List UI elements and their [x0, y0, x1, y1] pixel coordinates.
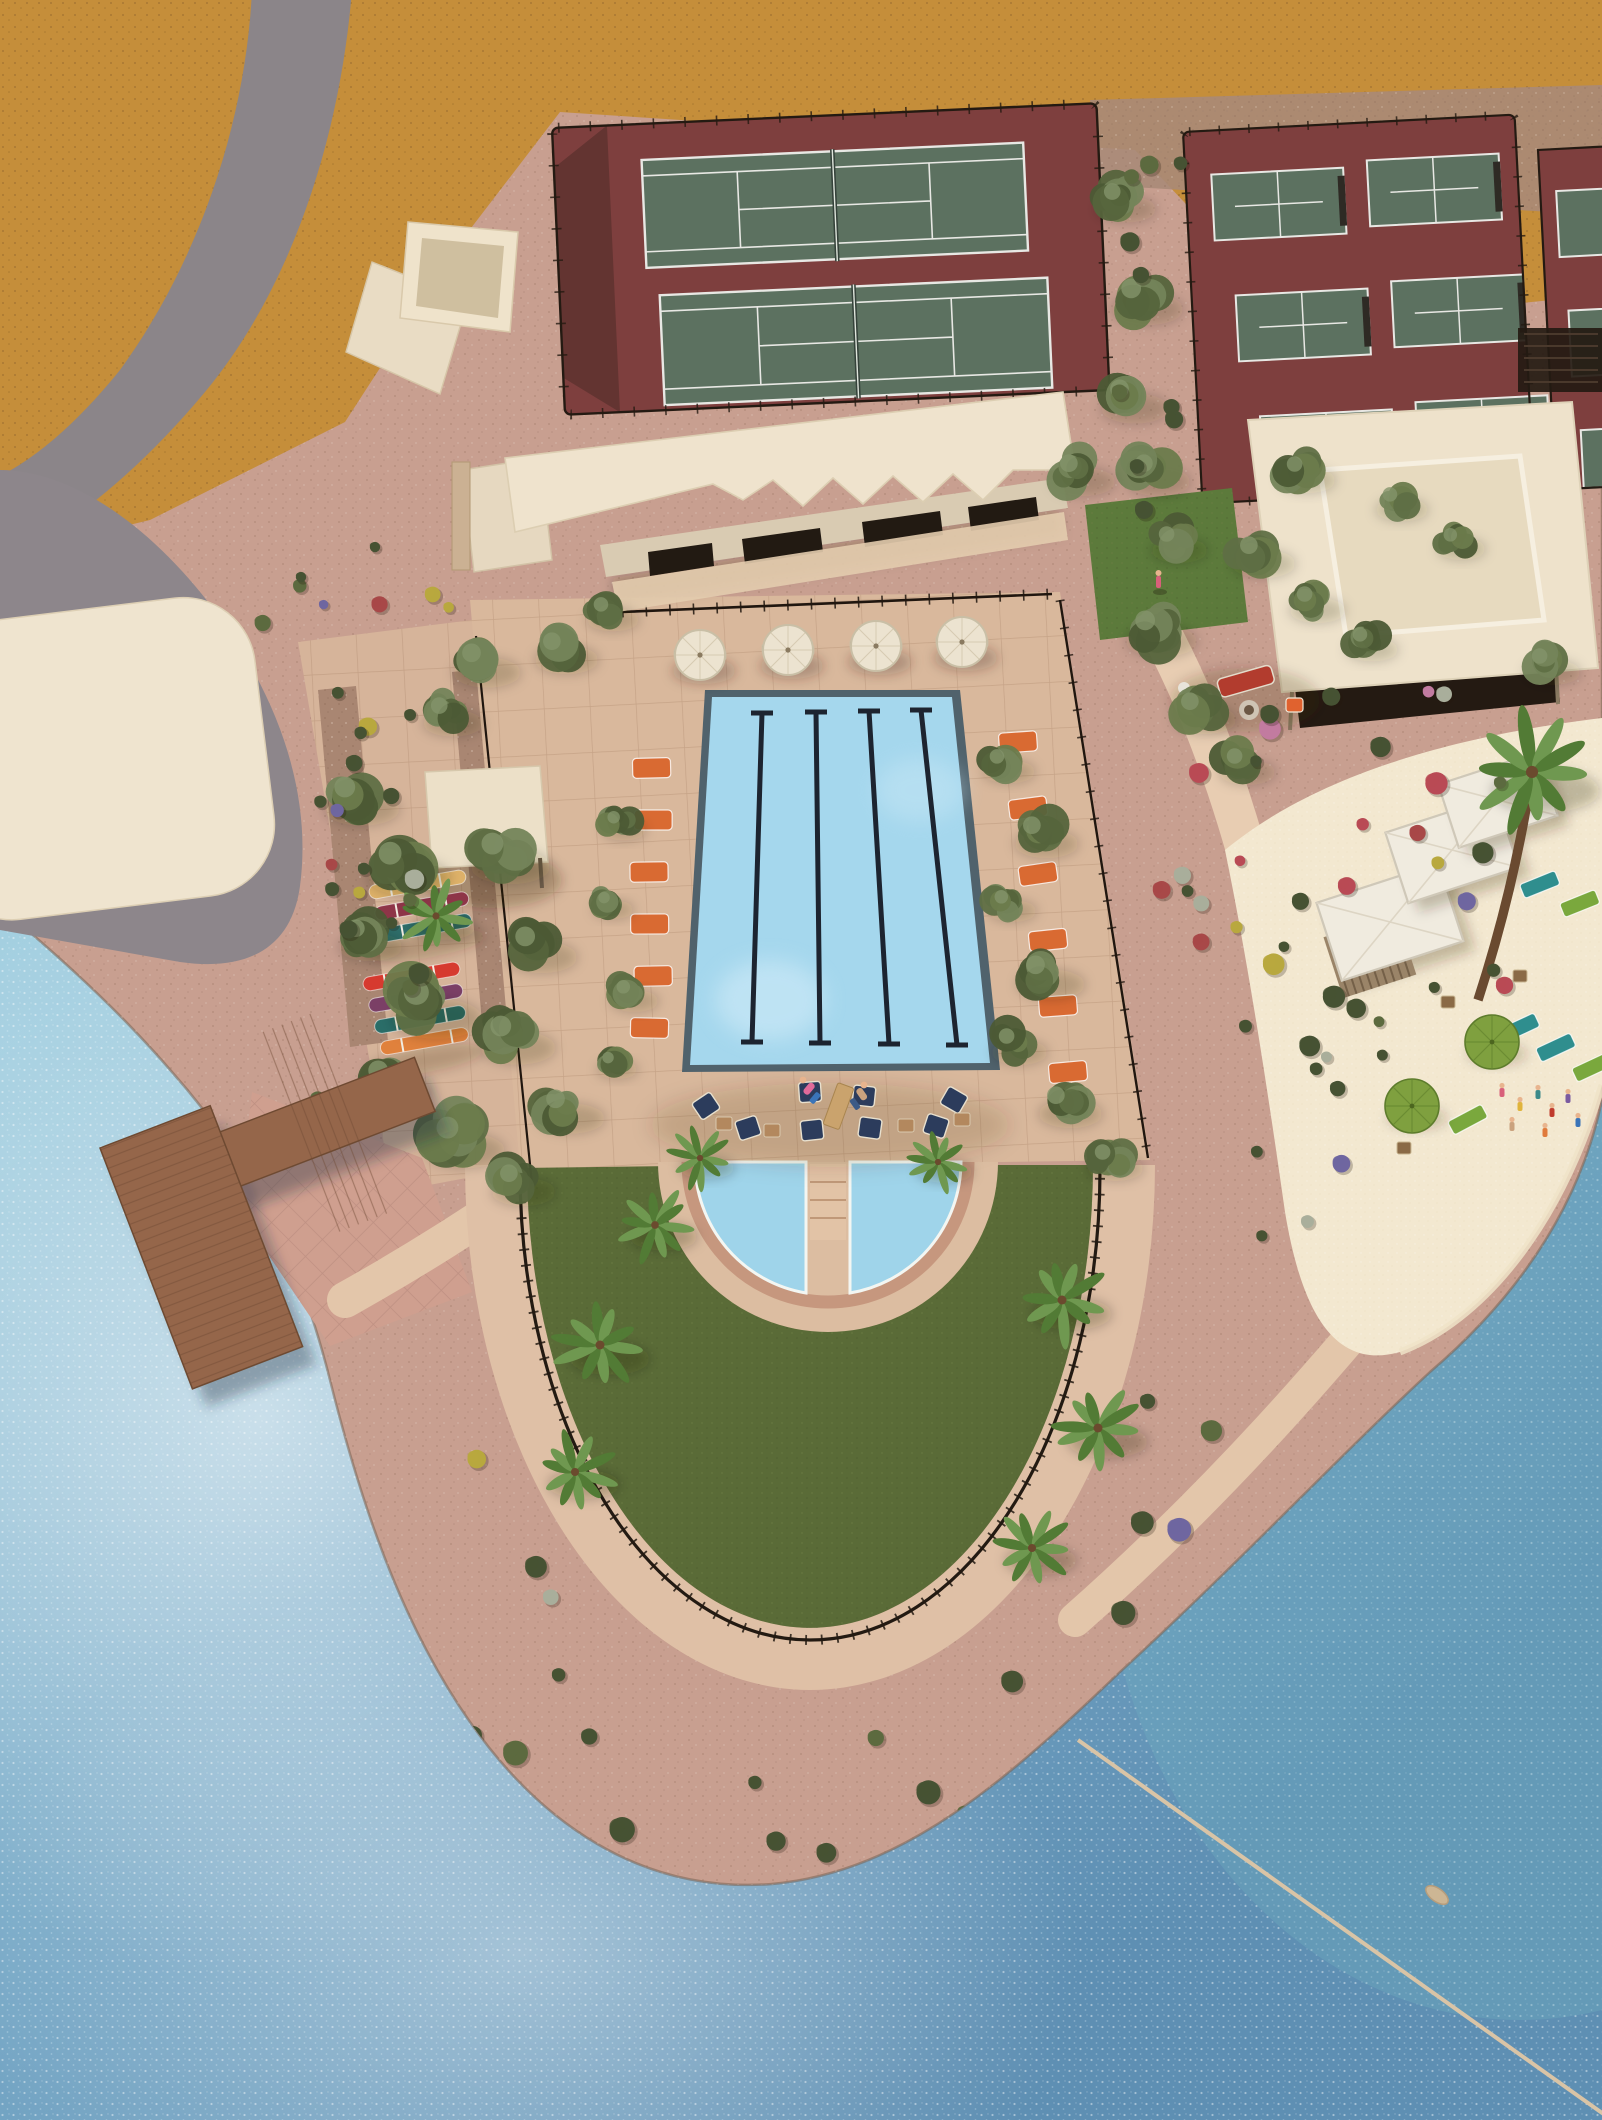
- orange-chair-2: [1286, 698, 1303, 712]
- shrub-tuft: [503, 1742, 518, 1757]
- shrub-tuft: [1323, 987, 1336, 1000]
- shrub-tuft: [1133, 268, 1143, 278]
- shrub-tuft: [1153, 882, 1164, 893]
- umbrella-pole: [1410, 1104, 1415, 1109]
- shrub-tuft: [1301, 1216, 1309, 1224]
- pool-reflection-1: [715, 960, 825, 1040]
- orange-lounger-left: [630, 1018, 668, 1039]
- umbrella-pole: [1490, 1040, 1495, 1045]
- shrub-tuft: [1346, 1000, 1358, 1012]
- shrub-tuft: [386, 918, 393, 925]
- foliage-highlight: [607, 811, 619, 823]
- foliage-highlight: [598, 892, 609, 903]
- shrub-tuft: [1165, 411, 1176, 422]
- palm-crown: [1058, 1296, 1067, 1305]
- shrub-tuft: [1001, 1672, 1014, 1685]
- foliage-highlight: [1383, 487, 1398, 502]
- foliage-highlight: [1159, 526, 1175, 542]
- head: [1509, 1117, 1514, 1122]
- model-photo: [0, 0, 1602, 2120]
- shrub-tuft: [552, 1669, 560, 1677]
- body: [1543, 1128, 1548, 1137]
- shrub-tuft: [766, 1833, 778, 1845]
- shrub-tuft: [358, 864, 365, 871]
- foliage-highlight: [990, 749, 1005, 764]
- foliage-highlight: [1227, 748, 1243, 764]
- shrub-tuft: [1124, 170, 1133, 179]
- shrub-tuft: [255, 616, 265, 626]
- ottoman: [954, 1113, 970, 1126]
- shrub-tuft: [868, 1731, 878, 1741]
- shrub-tuft: [1458, 893, 1469, 904]
- tennis-complex: [552, 103, 1109, 414]
- body: [1536, 1090, 1541, 1099]
- foliage-highlight: [490, 1016, 511, 1037]
- shrub-tuft: [340, 922, 351, 933]
- shrub-tuft: [1357, 819, 1364, 826]
- foliage-highlight: [500, 1164, 518, 1182]
- side-table: [1513, 970, 1527, 982]
- shrub-tuft: [1251, 1147, 1258, 1154]
- side-table: [1397, 1142, 1411, 1154]
- foliage-highlight: [462, 643, 481, 662]
- tree: [595, 806, 647, 841]
- shrub-tuft: [1230, 922, 1237, 929]
- foliage-highlight: [1026, 955, 1045, 974]
- foliage-highlight: [1287, 456, 1303, 472]
- pickleball-court: [1211, 168, 1347, 241]
- umbrella-pole: [697, 652, 702, 657]
- umbrella-pole: [873, 643, 878, 648]
- side-table: [1441, 996, 1455, 1008]
- head: [1565, 1089, 1570, 1094]
- umbrella-pole: [785, 647, 790, 652]
- shrub-tuft: [1260, 706, 1271, 717]
- foliage-highlight: [546, 1089, 565, 1108]
- foliage-highlight: [995, 890, 1009, 904]
- beach-person: [1565, 1089, 1570, 1103]
- body: [1566, 1094, 1571, 1103]
- shrub-tuft: [1140, 1395, 1149, 1404]
- shrub-tuft: [1163, 400, 1173, 410]
- foliage-highlight: [1095, 1144, 1111, 1160]
- shrub-tuft: [319, 600, 325, 606]
- shrub-tuft: [353, 887, 360, 894]
- foliage-highlight: [1532, 648, 1548, 664]
- foliage-highlight: [1047, 1086, 1065, 1104]
- shrub-tuft: [1167, 1519, 1181, 1533]
- beach-person: [1509, 1117, 1514, 1131]
- shrub-tuft: [354, 727, 361, 734]
- pickleball-court: [1236, 289, 1372, 362]
- shrub-tuft: [1374, 1017, 1380, 1023]
- palm-crown: [697, 1155, 703, 1161]
- shrub-tuft: [314, 796, 321, 803]
- shrub-tuft: [405, 871, 417, 883]
- shrub-tuft: [1130, 460, 1139, 469]
- foliage-highlight: [1060, 454, 1078, 472]
- shrub-tuft: [1135, 502, 1146, 513]
- beach-person: [1575, 1113, 1580, 1127]
- shrub-tuft: [1263, 955, 1276, 968]
- shrub-tuft: [383, 789, 393, 799]
- shrub-tuft: [326, 859, 333, 866]
- shrub-tuft: [1201, 1422, 1214, 1435]
- shrub-tuft: [296, 573, 302, 579]
- head: [861, 1082, 868, 1089]
- tennis-court-2: [660, 276, 1053, 407]
- head: [1535, 1085, 1540, 1090]
- foliage-highlight: [1297, 586, 1313, 602]
- shrub-tuft: [1431, 857, 1439, 865]
- shrub-tuft: [1321, 1052, 1328, 1059]
- palm-crown: [935, 1159, 941, 1165]
- stone-pier-wall: [452, 462, 470, 570]
- shrub-tuft: [581, 1729, 591, 1739]
- shrub-tuft: [1338, 878, 1349, 889]
- shrub-tuft: [467, 1451, 478, 1462]
- foliage-highlight: [1353, 627, 1368, 642]
- shrub-tuft: [1425, 774, 1438, 787]
- head: [1517, 1097, 1522, 1102]
- foliage-highlight: [617, 980, 631, 994]
- foliage-highlight: [431, 697, 448, 714]
- foliage-highlight: [1104, 183, 1121, 200]
- shrub-tuft: [543, 1590, 552, 1599]
- shrub-tuft: [403, 894, 411, 902]
- body: [1550, 1108, 1555, 1117]
- shrub-tuft: [916, 1782, 930, 1796]
- head: [800, 1077, 807, 1084]
- palm-crown: [651, 1221, 659, 1229]
- pickleball-court: [1391, 274, 1527, 347]
- foliage-highlight: [379, 842, 402, 865]
- palm-crown: [1094, 1424, 1103, 1433]
- body: [1518, 1102, 1523, 1111]
- pavilion-roof-inset: [1320, 456, 1544, 636]
- ottoman: [716, 1117, 732, 1130]
- shrub-tuft: [1429, 983, 1436, 990]
- shrub-tuft: [1250, 756, 1257, 763]
- foliage-highlight: [334, 777, 355, 798]
- beach-person: [1517, 1097, 1522, 1111]
- orange-lounger-left: [630, 862, 668, 883]
- head: [1542, 1123, 1547, 1128]
- shrub-tuft: [346, 756, 356, 766]
- shrub-tuft: [1239, 1021, 1247, 1029]
- scene-canvas: [0, 0, 1602, 2120]
- pickleball-court: [1367, 153, 1503, 226]
- orange-lounger-left: [631, 914, 669, 934]
- shrub-tuft: [1409, 826, 1419, 836]
- shrub-tuft: [1131, 1513, 1145, 1527]
- fire-pit-bowl: [1244, 705, 1254, 715]
- shrub-tuft: [1496, 978, 1506, 988]
- shrub-tuft: [1472, 844, 1485, 857]
- navy-lounge-chair: [800, 1119, 824, 1141]
- shrub-tuft: [371, 597, 381, 607]
- kiosk-interior: [416, 238, 504, 318]
- orange-lounger-right: [1028, 928, 1068, 952]
- shrub-tuft: [1299, 1037, 1311, 1049]
- shrub-tuft: [1174, 157, 1182, 165]
- palm-crown: [1028, 1544, 1036, 1552]
- shrub-tuft: [1235, 856, 1241, 862]
- ottoman: [764, 1124, 780, 1137]
- shrub-tuft: [1436, 687, 1445, 696]
- shrub-tuft: [1370, 738, 1382, 750]
- shrub-tuft: [1174, 868, 1184, 878]
- body: [1510, 1122, 1515, 1131]
- foliage-highlight: [1240, 536, 1258, 554]
- tennis-court-1: [641, 141, 1028, 270]
- foliage: [1393, 492, 1420, 519]
- orange-lounger-right: [1048, 1060, 1088, 1083]
- beach-person: [1535, 1085, 1540, 1099]
- shrub-tuft: [1111, 1602, 1126, 1617]
- beach-person: [1542, 1123, 1547, 1137]
- shrub-tuft: [1182, 886, 1189, 893]
- shrub-tuft: [1310, 1063, 1318, 1071]
- palm-crown: [432, 912, 439, 919]
- shrub-tuft: [609, 1819, 624, 1834]
- navy-lounge-chair: [858, 1117, 883, 1140]
- foliage-highlight: [543, 632, 561, 650]
- beach-person: [1549, 1103, 1554, 1117]
- shrub-tuft: [1423, 687, 1430, 694]
- shrub-tuft: [1322, 689, 1333, 700]
- ottoman: [898, 1119, 914, 1132]
- shrub-tuft: [370, 543, 376, 549]
- umbrella-pole: [959, 639, 964, 644]
- lap-pool: [682, 690, 1000, 1072]
- shrub-tuft: [443, 603, 449, 609]
- palm-crown: [1526, 766, 1538, 778]
- pool-reflection-2: [875, 758, 965, 822]
- shrub-tuft: [1333, 1156, 1344, 1167]
- shrub-tuft: [332, 688, 339, 695]
- shrub-tuft: [1487, 965, 1495, 973]
- shrub-tuft: [1193, 897, 1203, 907]
- body: [1500, 1088, 1505, 1097]
- foliage-highlight: [594, 597, 609, 612]
- palm-crown: [596, 1341, 605, 1350]
- shrub-tuft: [816, 1844, 828, 1856]
- foliage-highlight: [1135, 611, 1155, 631]
- shrub-tuft: [525, 1557, 538, 1570]
- body: [1576, 1118, 1581, 1127]
- foliage-highlight: [515, 927, 535, 947]
- shrub-tuft: [409, 965, 421, 977]
- future-building-pad: [0, 589, 283, 928]
- shrub-tuft: [331, 805, 339, 813]
- foliage-highlight: [482, 833, 504, 855]
- shrub-tuft: [748, 1777, 756, 1785]
- splash-center-steps: [810, 1164, 846, 1240]
- foliage-highlight: [1444, 528, 1458, 542]
- shrub-tuft: [425, 588, 434, 597]
- shrub-tuft: [403, 980, 413, 990]
- shrub-tuft: [1140, 157, 1151, 168]
- beach-person: [1499, 1083, 1504, 1097]
- shrub-tuft: [1330, 1082, 1339, 1091]
- shrub-tuft: [1494, 777, 1501, 784]
- court-pergola: [1518, 328, 1602, 392]
- shrub-tuft: [404, 710, 411, 717]
- shrub-tuft: [1120, 234, 1132, 246]
- shrub-tuft: [1279, 942, 1285, 948]
- shrub-tuft: [1292, 894, 1302, 904]
- foliage-highlight: [602, 1052, 613, 1063]
- shrub-tuft: [1193, 935, 1203, 945]
- head: [1499, 1083, 1504, 1088]
- foliage-highlight: [1181, 692, 1199, 710]
- palm-crown: [571, 1468, 579, 1476]
- shrub-tuft: [1256, 1231, 1263, 1238]
- head: [1575, 1113, 1580, 1118]
- shrub-tuft: [325, 883, 333, 891]
- foliage-highlight: [999, 1028, 1015, 1044]
- shrub-tuft: [1112, 385, 1121, 394]
- shrub-tuft: [1377, 1050, 1384, 1057]
- shrub-tuft: [1189, 764, 1201, 776]
- foliage-highlight: [1023, 816, 1041, 834]
- head: [1549, 1103, 1554, 1108]
- orange-lounger-left: [632, 758, 670, 779]
